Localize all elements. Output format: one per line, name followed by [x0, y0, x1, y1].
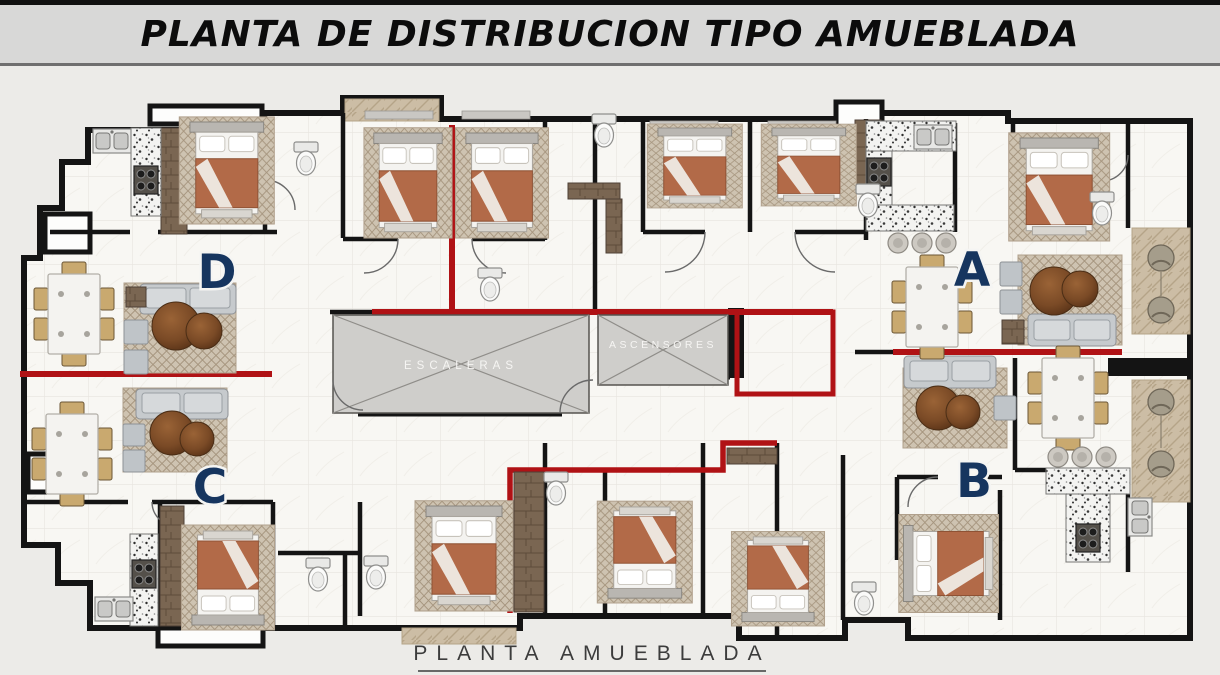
unit-label-b: B [956, 454, 992, 509]
bed [179, 117, 274, 224]
unit-label-a: A [954, 243, 991, 298]
coffee-table [1062, 271, 1098, 307]
wardrobe [568, 183, 620, 199]
side-table [1002, 320, 1024, 344]
plan-caption: PLANTA AMUEBLADA [413, 642, 770, 671]
armchair [1000, 262, 1022, 286]
page-title: PLANTA DE DISTRIBUCION TIPO AMUEBLADA [140, 14, 1079, 55]
unit-b-living [903, 356, 1016, 448]
bed [899, 515, 999, 613]
stove [132, 560, 156, 588]
ledge-box [158, 628, 263, 646]
bed [364, 128, 452, 238]
stove [1076, 524, 1100, 552]
floor-plan-drawing: ESCALERAS ASCENSORES [0, 66, 1220, 675]
bed [761, 124, 856, 206]
plan-caption-text: PLANTA AMUEBLADA [413, 642, 770, 665]
coffee-table [946, 395, 980, 429]
bar-stool [1072, 447, 1092, 467]
unit-label-c: C [193, 460, 228, 515]
door-lintel [365, 111, 433, 119]
bed [181, 525, 274, 630]
balcony-chair [1148, 297, 1174, 323]
kitchen-sink [95, 597, 133, 621]
wardrobe [606, 199, 622, 253]
bar-stool [912, 233, 932, 253]
stove [867, 158, 891, 186]
balcony-chair [1148, 245, 1174, 271]
kitchen-counter [1046, 468, 1130, 494]
elevators-core: ASCENSORES [598, 315, 728, 385]
coffee-table [180, 422, 214, 456]
coffee-table [186, 313, 222, 349]
balcony-chair [1148, 389, 1174, 415]
bar-stool [1048, 447, 1068, 467]
armchair [123, 450, 145, 472]
bar-stool [888, 233, 908, 253]
unit-label-d: D [197, 245, 236, 300]
bed [1009, 133, 1110, 241]
bed [597, 501, 692, 603]
title-bar: PLANTA DE DISTRIBUCION TIPO AMUEBLADA [0, 0, 1220, 66]
armchair [994, 396, 1016, 420]
kitchen-counter [866, 205, 954, 231]
stairs-core: ESCALERAS [333, 315, 589, 413]
kitchen-sink [93, 129, 131, 153]
floor-plan-page: PLANTA DE DISTRIBUCION TIPO AMUEBLADA [0, 0, 1220, 675]
stairs-label: ESCALERAS [404, 360, 518, 372]
stove [134, 166, 158, 194]
bed [647, 124, 742, 208]
kitchen-sink [914, 125, 952, 149]
armchair [124, 320, 148, 344]
bed [455, 128, 548, 238]
armchair [123, 424, 145, 446]
armchair [1000, 290, 1022, 314]
unit-a-living [1000, 255, 1122, 346]
bed [731, 532, 824, 627]
bar-stool [1096, 447, 1116, 467]
armchair [124, 350, 148, 374]
balcony-chair [1148, 451, 1174, 477]
bed [415, 501, 513, 611]
wardrobe [727, 448, 777, 464]
side-table [126, 287, 146, 307]
wardrobe [160, 506, 184, 626]
title-band: PLANTA DE DISTRIBUCION TIPO AMUEBLADA [0, 5, 1220, 66]
wardrobe [514, 472, 544, 612]
elevators-label: ASCENSORES [609, 339, 717, 351]
kitchen-sink [1128, 498, 1152, 536]
door-lintel [462, 111, 530, 119]
